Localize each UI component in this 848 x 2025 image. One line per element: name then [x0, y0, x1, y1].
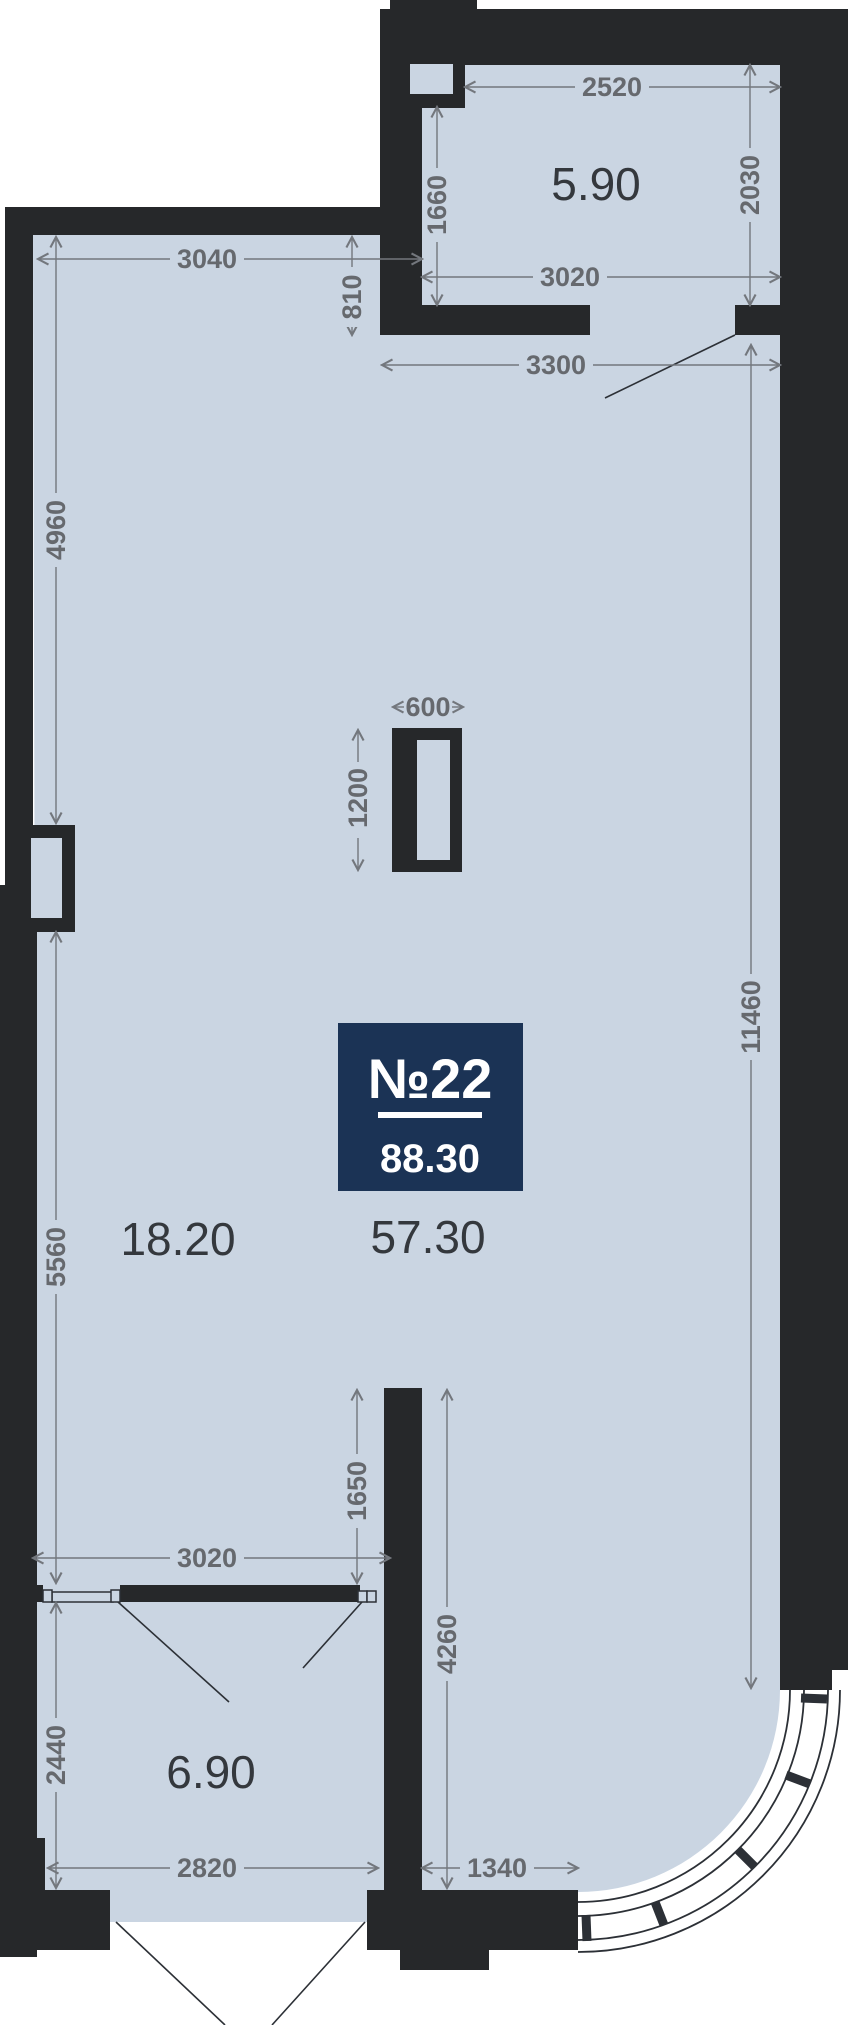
wall-left-lower — [0, 885, 37, 1957]
wall-bottom-room-top-stub — [0, 1585, 43, 1602]
dim-label-2820: 2820 — [177, 1853, 237, 1883]
entrance-door-swing-right — [272, 1922, 365, 2025]
floor-plan-page: 3040 2520 3020 3300 3020 2820 1340 600 — [0, 0, 848, 2025]
door-hinge-block — [358, 1591, 367, 1602]
dim-label-1200: 1200 — [343, 768, 373, 828]
room-area-label-left: 18.20 — [120, 1213, 235, 1265]
glazing-mullion — [738, 1850, 755, 1867]
door-hinge-block — [43, 1590, 52, 1602]
dim-label-3040: 3040 — [177, 244, 237, 274]
dim-label-1340: 1340 — [467, 1853, 527, 1883]
unit-number: №22 — [368, 1047, 493, 1110]
dim-label-600: 600 — [405, 692, 450, 722]
dim-label-4960: 4960 — [41, 500, 71, 560]
wall-niche-opening — [410, 64, 453, 94]
glazing-mullion — [801, 1698, 827, 1699]
dim-label-5560: 5560 — [41, 1227, 71, 1287]
wall-bottom-outer-step — [400, 1950, 489, 1970]
room-area-label-main: 57.30 — [370, 1211, 485, 1263]
wall-below-top-room-left — [412, 305, 590, 335]
dim-label-3020-bottom: 3020 — [177, 1543, 237, 1573]
floor-plan: 3040 2520 3020 3300 3020 2820 1340 600 — [0, 0, 848, 2025]
wall-bottom-right-of-door — [367, 1890, 578, 1950]
glazing-mullion — [655, 1902, 664, 1925]
door-leaf-bottom-left — [52, 1592, 113, 1602]
wall-left-corner-step — [33, 1838, 45, 1890]
dim-label-11460: 11460 — [736, 980, 766, 1054]
door-hinge-block — [111, 1590, 120, 1602]
wall-top-room-left — [380, 9, 422, 335]
wall-right — [780, 9, 848, 1670]
glazing-mullion — [786, 1775, 810, 1784]
room-area-label-top: 5.90 — [551, 158, 641, 210]
wall-left-duct-opening — [31, 838, 62, 918]
dim-label-2030: 2030 — [735, 155, 765, 215]
unit-badge: №22 88.30 — [338, 1023, 523, 1191]
dim-label-3020-top: 3020 — [540, 262, 600, 292]
door-hinge-block — [367, 1591, 376, 1602]
wall-below-top-room-right — [735, 305, 780, 335]
unit-badge-divider — [378, 1112, 482, 1118]
dim-label-1650: 1650 — [342, 1461, 372, 1521]
dim-label-2520: 2520 — [582, 72, 642, 102]
wall-pier — [384, 1388, 422, 1890]
glazing-mullion — [586, 1915, 587, 1941]
dim-label-2440: 2440 — [41, 1725, 71, 1785]
wall-main-top — [5, 207, 390, 235]
entrance-door-swing-left — [116, 1922, 225, 2025]
wall-bottom-room-partition — [120, 1585, 360, 1602]
wall-bottom-left-of-door — [37, 1890, 110, 1950]
shaft-opening — [417, 740, 450, 860]
wall-left-upper — [5, 235, 33, 890]
room-area-label-bottom: 6.90 — [166, 1746, 256, 1798]
dim-label-810: 810 — [337, 274, 367, 319]
unit-total-area: 88.30 — [380, 1137, 480, 1181]
dim-label-4260: 4260 — [432, 1614, 462, 1674]
wall-right-foot — [780, 1670, 832, 1690]
dim-label-3300: 3300 — [526, 350, 586, 380]
dim-label-1660: 1660 — [422, 175, 452, 235]
floor-entrance-threshold — [110, 1890, 367, 1922]
wall-top-protrusion — [390, 0, 477, 9]
